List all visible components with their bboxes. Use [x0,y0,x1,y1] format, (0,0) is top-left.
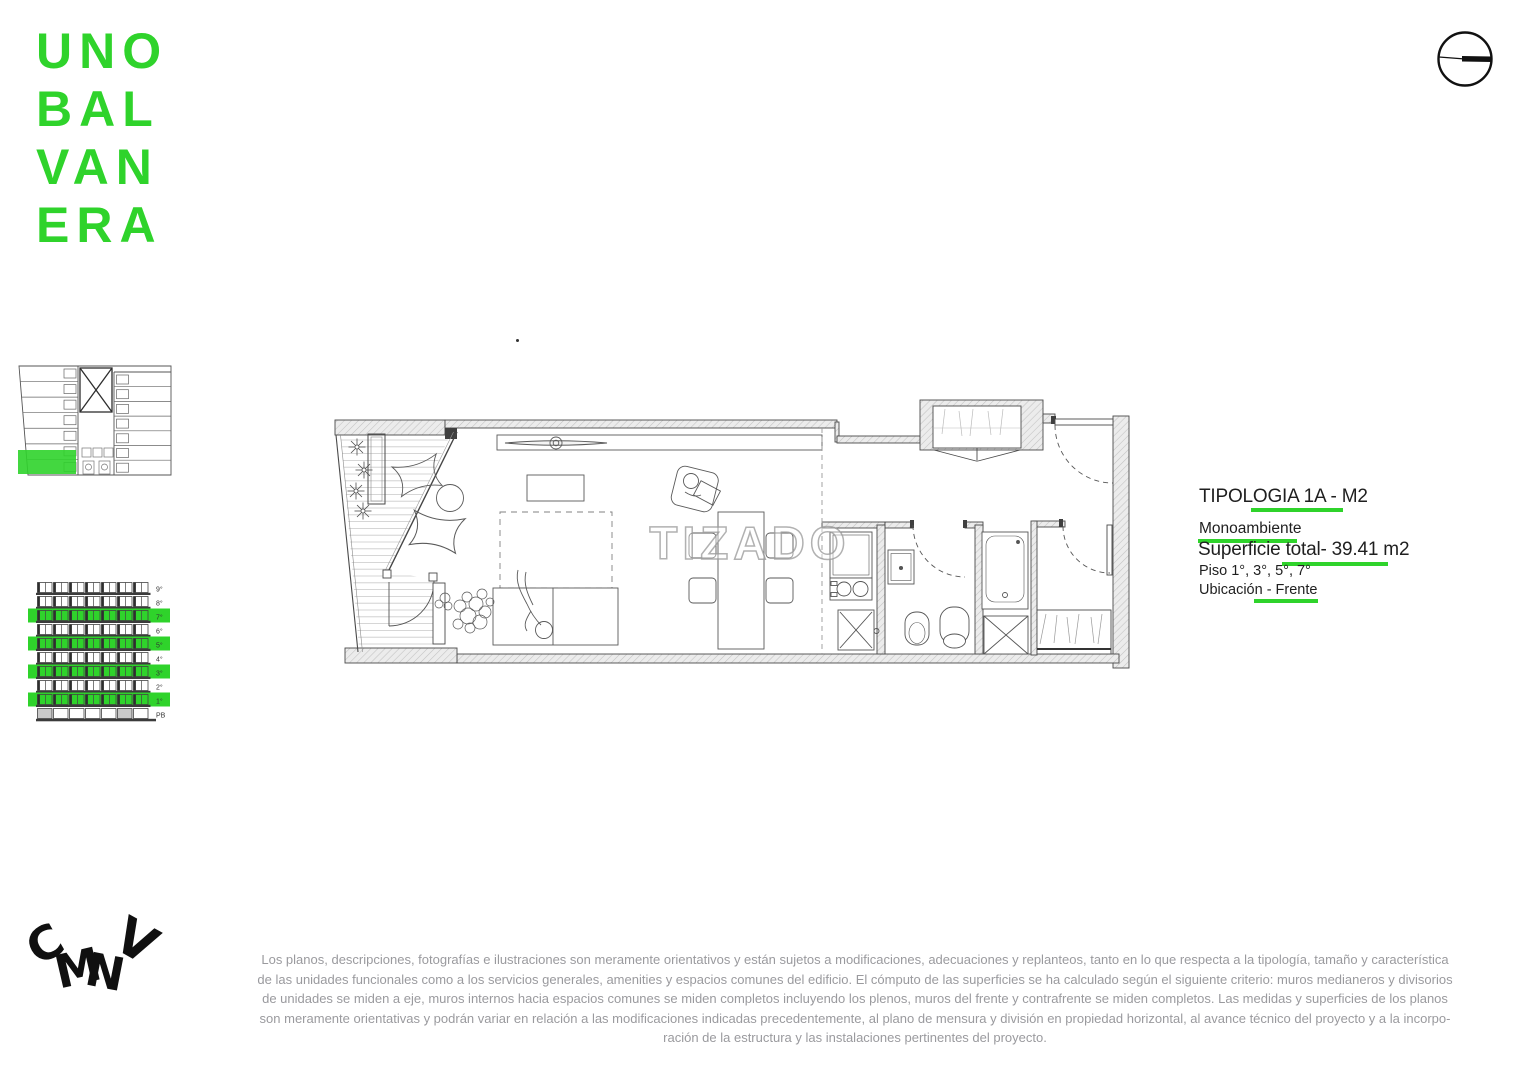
balcony-plants-icon [348,439,373,520]
glass-facade [388,432,457,572]
floor-label: 9° [156,586,163,594]
key-plan [16,360,180,484]
total-area-label: Superficie total- 39.41 m2 [1198,539,1409,561]
typology-title: TIPOLOGIA 1A - M2 [1199,486,1368,508]
floor-label: 7° [156,614,163,622]
hall-door-swing [1063,526,1110,573]
disclaimer-line: son meramente orientativas y podrán vari… [205,1009,1505,1029]
floors-label: Piso 1°, 3°, 5°, 7° [1199,563,1311,579]
desk-chair-person-icon [670,464,721,513]
floor-label: 5° [156,642,163,650]
entry-door-swing [1055,425,1113,483]
disclaimer-line: de las unidades funcionales como a los s… [205,970,1505,990]
disclaimer-text: Los planos, descripciones, fotografías e… [205,950,1505,1048]
main-floor-plan: TIZADO [330,392,1160,677]
floor-label: 2° [156,684,163,692]
bathroom [888,525,969,648]
tizado-watermark: TIZADO [649,517,850,569]
bathroom-2 [982,532,1028,654]
floor-label: 8° [156,600,163,608]
disclaimer-line: ración de la estructura y las instalacio… [205,1028,1505,1048]
key-plan-highlight [18,450,76,474]
north-compass-icon [1436,30,1496,90]
unit-type-label: Monoambiente [1199,520,1302,538]
title-underline [1251,508,1343,512]
tv-stand [527,475,584,501]
floor-label: 1° [156,698,163,706]
logo-line: UNO [36,22,168,80]
elevation-diagram: 9°8°7°6°5°4°3°2°1°PB [28,580,180,730]
ceiling-fan-icon [505,441,607,446]
entry-door-leaf [1055,419,1113,425]
floor-label: 6° [156,628,163,636]
chair [766,578,793,603]
stray-dot [516,339,519,342]
floor-label: 3° [156,670,163,678]
logo-line: ERA [36,196,168,254]
floor-label: PB [156,713,166,720]
disclaimer-line: de unidades se miden a eje, muros intern… [205,989,1505,1009]
closet-top [933,406,1021,448]
floor-label: 4° [156,656,163,664]
bed [493,588,618,645]
balcony [336,432,457,652]
brand-logo: UNO BAL VAN ERA [36,22,168,254]
disclaimer-line: Los planos, descripciones, fotografías e… [205,950,1505,970]
hall-door-leaf [1107,525,1112,575]
cmnv-logo: C M N V [24,905,194,1025]
bathroom-door-swing [913,525,965,577]
toilet [905,612,929,645]
chair [689,578,716,603]
logo-line: VAN [36,138,168,196]
location-label: Ubicación - Frente [1199,582,1317,598]
key-plan-core [80,368,112,412]
logo-line: BAL [36,80,168,138]
pouf-icon [407,508,465,555]
location-underline [1254,599,1318,603]
side-table [437,485,464,512]
